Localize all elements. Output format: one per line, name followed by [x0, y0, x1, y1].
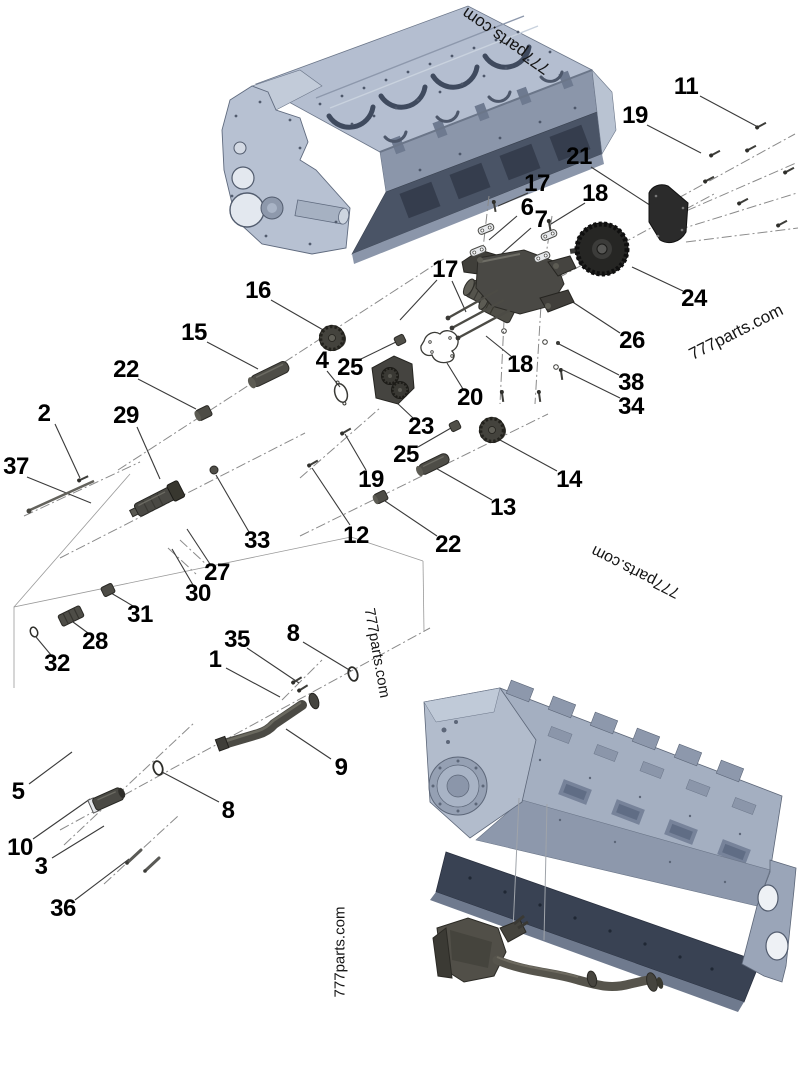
- watermark-bottom-vertical: 777parts.com: [333, 907, 348, 998]
- callout-19-b: 19: [358, 468, 384, 492]
- callout-16: 16: [245, 279, 271, 303]
- callout-17-a: 17: [524, 172, 550, 196]
- callout-24: 24: [681, 287, 707, 311]
- callout-26: 26: [619, 329, 645, 353]
- callout-25-a: 25: [337, 356, 363, 380]
- part-pin-37: [27, 481, 95, 514]
- callout-22-b: 22: [435, 533, 461, 557]
- callout-10: 10: [7, 836, 33, 860]
- callout-32: 32: [44, 652, 70, 676]
- part-relief-valve: [127, 480, 185, 521]
- callout-34: 34: [618, 395, 644, 419]
- part-ring-4: [331, 379, 350, 406]
- callout-18-a: 18: [582, 182, 608, 206]
- callout-31: 31: [127, 603, 153, 627]
- callout-37: 37: [3, 455, 29, 479]
- callout-23: 23: [408, 415, 434, 439]
- callout-7: 7: [535, 208, 548, 232]
- callout-28: 28: [82, 630, 108, 654]
- callout-8-b: 8: [222, 799, 235, 823]
- part-fitting-10: [88, 785, 127, 813]
- callout-19-a: 19: [622, 104, 648, 128]
- callout-20: 20: [457, 386, 483, 410]
- callout-38: 38: [618, 371, 644, 395]
- callout-1: 1: [209, 648, 222, 672]
- callout-11: 11: [674, 75, 698, 99]
- callout-17-b: 17: [432, 258, 458, 282]
- part-idler-plate: [372, 356, 414, 404]
- callout-21: 21: [566, 145, 592, 169]
- part-pins-36: [125, 850, 159, 873]
- part-oring-8b: [152, 760, 164, 776]
- part-plug-25b: [449, 420, 462, 432]
- callout-14: 14: [556, 468, 582, 492]
- engine-block-top-illustration: [222, 6, 616, 264]
- diagram-art: [0, 0, 800, 1067]
- part-oring-8a: [347, 666, 359, 682]
- callout-36: 36: [50, 897, 76, 921]
- part-shaft-15: [246, 360, 290, 390]
- part-cover-plate: [649, 185, 688, 243]
- callout-9: 9: [335, 756, 348, 780]
- callout-18-b: 18: [507, 353, 533, 377]
- callout-30: 30: [185, 582, 211, 606]
- callout-15: 15: [181, 321, 207, 345]
- part-plug-25a: [394, 334, 407, 346]
- callout-5: 5: [12, 780, 25, 804]
- callout-2: 2: [38, 402, 51, 426]
- part-gasket: [421, 331, 458, 363]
- part-ball-33: [210, 466, 218, 474]
- callout-3: 3: [35, 855, 48, 879]
- parts-diagram-page: 1 2 3 4 5 6 7 8 8 9 10 11 12 13 14 15 16…: [0, 0, 800, 1067]
- callout-13: 13: [490, 496, 516, 520]
- part-spring-28: [58, 605, 85, 626]
- callout-4: 4: [316, 349, 329, 373]
- part-oring-32: [29, 626, 39, 638]
- callout-8-a: 8: [287, 622, 300, 646]
- callout-22-a: 22: [113, 358, 139, 382]
- part-gear-14: [480, 418, 507, 443]
- callout-33: 33: [244, 529, 270, 553]
- callout-29: 29: [113, 404, 139, 428]
- callout-12: 12: [343, 524, 369, 548]
- callout-25-b: 25: [393, 443, 419, 467]
- part-clamp: [477, 223, 494, 235]
- callout-35: 35: [224, 628, 250, 652]
- callout-6: 6: [521, 196, 534, 220]
